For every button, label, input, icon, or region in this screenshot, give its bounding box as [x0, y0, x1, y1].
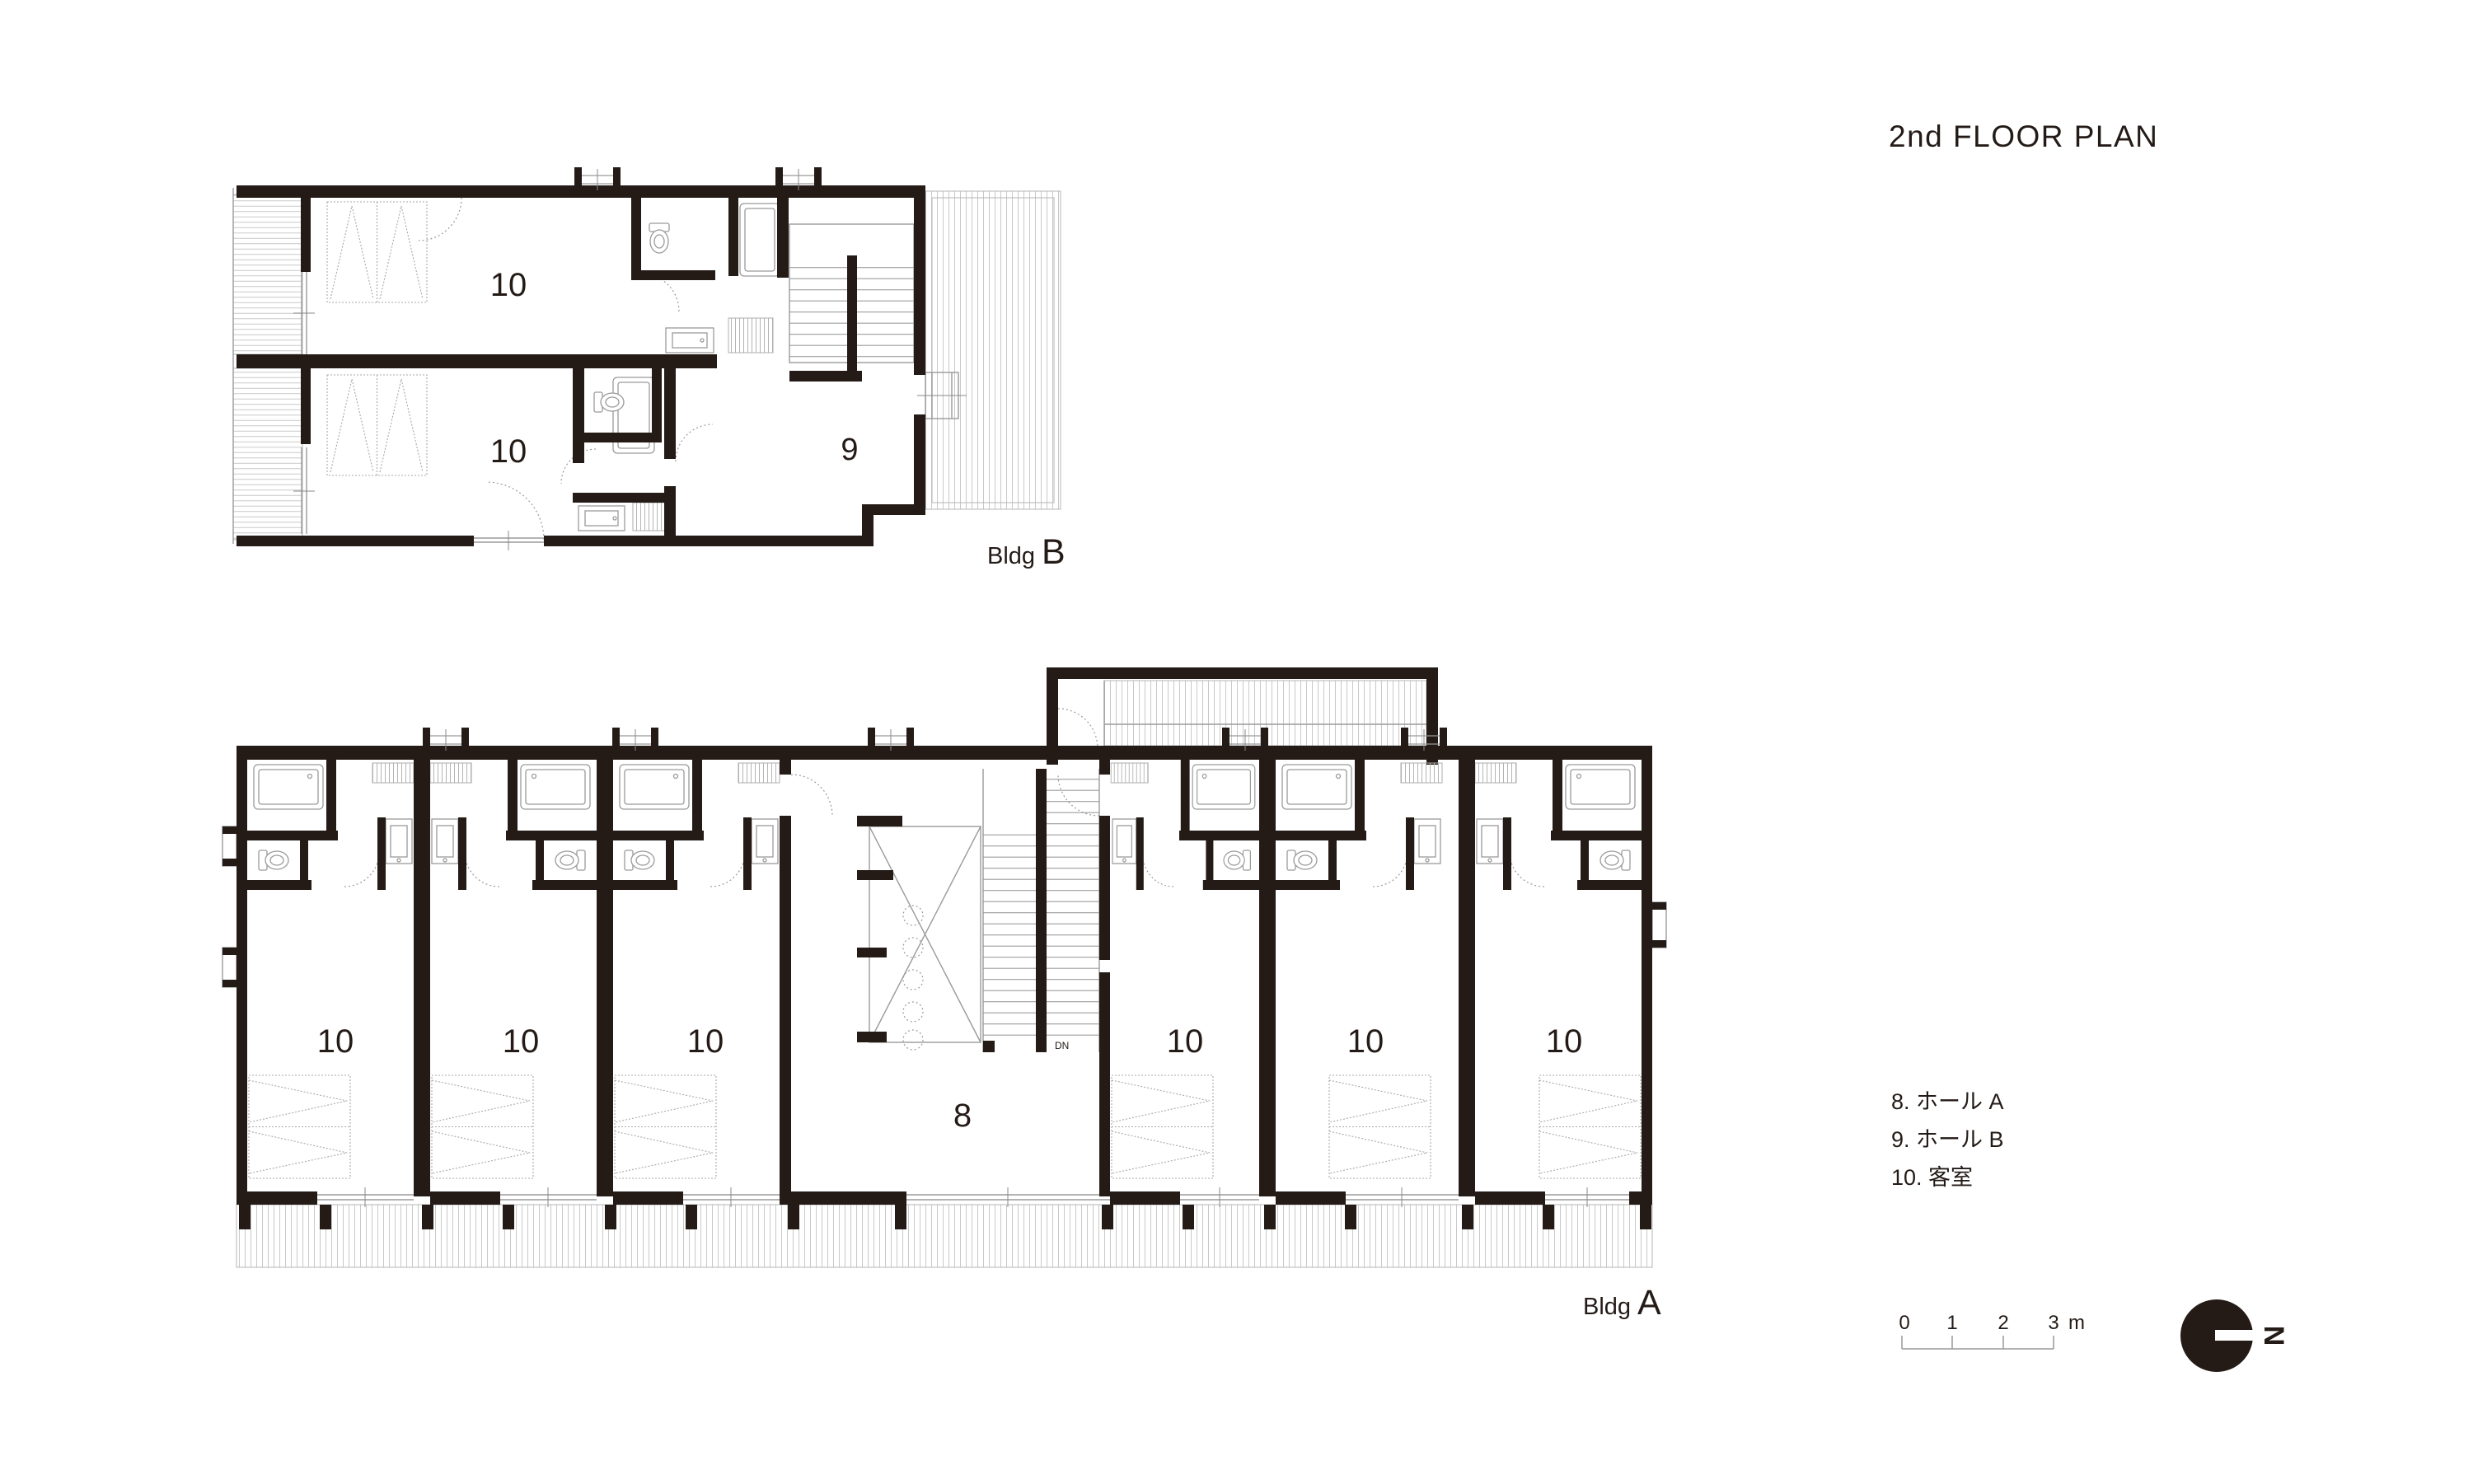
- floor-plan-canvas: 2nd FLOOR PLAN BldgB BldgA 10 10 9 10 10…: [0, 0, 2473, 1484]
- bldg-b-bath-core-upper: [419, 198, 780, 353]
- room-label: 10: [1167, 1023, 1204, 1060]
- bldg-b-left-deck-lower: [233, 368, 302, 540]
- bldg-b-label: BldgB: [987, 532, 1066, 572]
- bed-symbol: [327, 375, 427, 475]
- bath-module: [430, 760, 597, 890]
- hall-a-label: 8: [953, 1098, 972, 1134]
- room-label: 10: [1546, 1023, 1583, 1060]
- bldg-a-plan: [222, 667, 1666, 1267]
- bath-module: [613, 760, 780, 890]
- scale-tick: 3: [2048, 1312, 2058, 1334]
- north-arrow: N: [2180, 1299, 2289, 1372]
- bldg-a-deck: [237, 1205, 1652, 1267]
- bed-symbol: [249, 1075, 350, 1178]
- scale-tick: 2: [1998, 1312, 2008, 1334]
- bath-module: [247, 760, 414, 890]
- bath-module: [1475, 760, 1642, 890]
- bldg-b-right-deck: [925, 191, 1061, 509]
- scale-tick: 1: [1946, 1312, 1957, 1334]
- bed-symbol: [327, 202, 427, 302]
- bldg-b-plan: [233, 167, 1061, 550]
- stair-down-note: DN: [1055, 1040, 1069, 1051]
- bed-symbol: [1539, 1075, 1641, 1178]
- bldg-b-left-deck-upper: [233, 194, 302, 354]
- room-label: 10: [1347, 1023, 1384, 1060]
- room-label: 10: [317, 1023, 354, 1060]
- floor-plan-page: 2nd FLOOR PLAN BldgB BldgA 10 10 9 10 10…: [0, 0, 2473, 1484]
- legend: 8. ホール A 9. ホール B 10. 客室: [1891, 1089, 2004, 1190]
- bldg-a-stair-dn: [983, 769, 1099, 1052]
- bldg-a-walls: [237, 728, 1652, 1205]
- page-title: 2nd FLOOR PLAN: [1889, 119, 2158, 153]
- bath-module: [1276, 760, 1442, 890]
- bldg-a-label: BldgA: [1583, 1283, 1661, 1322]
- bldg-b-stair: [789, 224, 914, 382]
- scale-bar: 0 1 2 3 m: [1899, 1312, 2085, 1349]
- legend-item: 10. 客室: [1891, 1165, 1973, 1190]
- room-label: 10: [503, 1023, 540, 1060]
- north-label: N: [2258, 1326, 2289, 1346]
- bed-symbol: [432, 1075, 533, 1178]
- bed-symbol: [1329, 1075, 1431, 1178]
- bldg-a-bottom-windows: [317, 1187, 1629, 1207]
- bath-module: [1111, 760, 1261, 890]
- bed-symbol: [1112, 1075, 1213, 1178]
- hall-b-label: 9: [841, 433, 858, 467]
- room-label: 10: [490, 433, 527, 470]
- room-label: 10: [490, 267, 527, 303]
- legend-item: 9. ホール B: [1891, 1127, 2004, 1152]
- scale-unit: m: [2068, 1312, 2085, 1334]
- room-label: 10: [687, 1023, 724, 1060]
- scale-tick: 0: [1899, 1312, 1909, 1334]
- bed-symbol: [615, 1075, 716, 1178]
- legend-item: 8. ホール A: [1891, 1089, 2004, 1114]
